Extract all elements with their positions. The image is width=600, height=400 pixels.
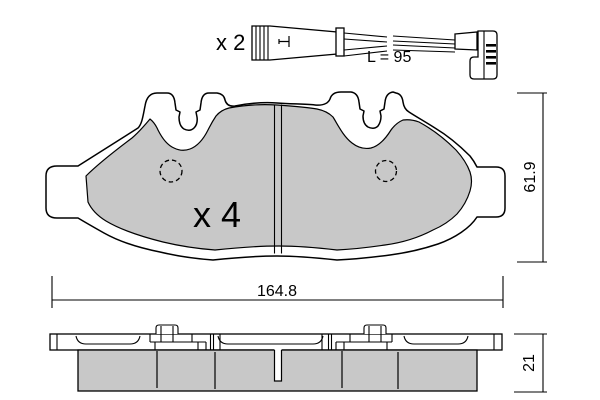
pad-side-view: [50, 325, 502, 391]
side-backing-plate: [50, 334, 502, 350]
pad-front-view: x 4: [46, 92, 505, 260]
sensor-quantity-label: x 2: [216, 30, 245, 55]
sensor-body: [252, 26, 337, 60]
side-center-slot: [275, 349, 282, 381]
height-dimension-label: 61.9: [522, 161, 539, 192]
clip-left-bump: [156, 325, 178, 334]
thickness-dimension-label: 21: [521, 354, 538, 372]
friction-surface: [86, 105, 472, 250]
brake-pad-drawing: x 2 L = 95 x 4 164.8 61.9: [0, 0, 600, 400]
technical-drawing-canvas: x 2 L = 95 x 4 164.8 61.9: [0, 0, 600, 400]
pad-quantity-label: x 4: [193, 194, 241, 235]
connector-boot: [455, 32, 477, 50]
width-dimension-label: 164.8: [257, 283, 297, 300]
clip-right-bump: [364, 325, 386, 334]
sensor-body-cap: [336, 28, 344, 56]
sensor-length-label: L = 95: [367, 49, 411, 66]
